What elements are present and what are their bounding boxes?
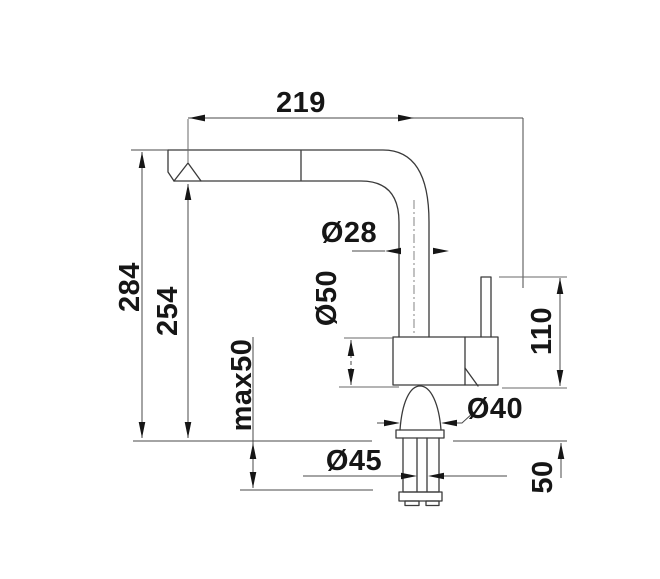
drawing-svg: 219 284 254 max50 Ø28 Ø50 [0,0,660,579]
arrowhead [558,443,565,459]
dim-label-tailpiece-diameter: Ø45 [326,445,382,477]
dimension-max-thickness: max50 [226,337,258,488]
arrowhead [557,370,564,386]
arrowhead [428,473,444,479]
dim-label-pipe-diameter: Ø28 [321,217,377,249]
dim-label-handle-height: 110 [526,307,558,355]
arrowhead [441,420,457,426]
arrowhead [384,420,400,426]
arrowhead [185,422,192,438]
spout-inner-path [174,181,399,337]
arrowhead [189,115,205,122]
faucet-dimension-drawing: 219 284 254 max50 Ø28 Ø50 [0,0,660,579]
base-dome [400,386,441,430]
dim-label-shank-length: 50 [527,460,559,493]
dimension-handle-height: 110 [499,277,567,388]
dimension-total-height: 284 [114,152,146,438]
dim-label-max-thickness: max50 [226,339,258,432]
arrowhead [385,248,401,254]
dimension-shank-length: 50 [527,443,564,494]
arrowhead [348,369,355,385]
handle-base-diagonal [465,368,478,386]
dimension-outlet-height: 254 [152,184,191,438]
dimension-tailpiece-diameter: Ø45 [303,445,507,479]
arrowhead [433,248,449,254]
arrowhead [139,152,146,168]
handle-lever [481,277,491,337]
dim-label-body-diameter: Ø50 [311,270,343,326]
base-flange [396,430,444,438]
arrowhead [250,472,257,488]
arrowhead [348,340,355,356]
dim-label-total-height: 284 [114,262,146,312]
arrowhead [401,473,417,479]
spout-outer-path [168,150,429,337]
dim-label-outlet-height: 254 [152,286,184,336]
arrowhead [139,422,146,438]
arrowhead [398,115,414,122]
nut-tabs [405,501,439,506]
dimension-body-diameter: Ø50 [311,270,399,387]
dimension-pipe-diameter: Ø28 [321,217,449,254]
arrowhead [250,443,257,459]
right-frame-extension [415,118,523,288]
arrowhead [185,184,192,200]
dimension-base-diameter: Ø40 [377,393,523,426]
spout-tip-end [168,150,174,181]
dim-label-spout-reach: 219 [276,87,326,119]
arrowhead [557,278,564,294]
dim-label-base-diameter: Ø40 [467,393,523,425]
mounting-nut [399,492,442,501]
threaded-shank [403,438,439,492]
body-rect [393,337,498,385]
aerator-nozzle [174,163,201,181]
